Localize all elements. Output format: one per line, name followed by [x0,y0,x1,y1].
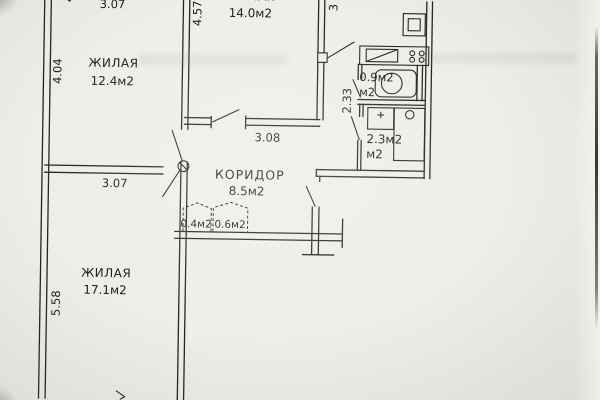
room1-name: ЖИЛАЯ [88,56,138,71]
sink-icon [366,49,398,62]
washbasin-icon [368,108,394,130]
paper-showthrough [138,54,288,65]
lower-cross-wall [303,207,335,255]
closet-1-area: 0.4м2 [180,218,211,230]
bath-area-unit: м2 [366,147,383,161]
wc-area-unit: м2 [359,85,375,99]
room3-area: 17.1м2 [83,283,127,298]
room1-area: 12.4м2 [90,74,134,89]
door-leaf-lower-room [306,186,316,207]
sanitary-bottom-wall [316,170,424,183]
dim-room1-height: 4.04 [50,58,64,84]
corner-shadow-bottom-left [0,378,24,400]
door-leaf-room3 [162,170,179,197]
door-leaf-room1 [172,130,183,162]
dim-room1-width: 3.07 [100,0,126,11]
dim-corridor-width: 3.08 [254,130,280,144]
wc-bath-divider-wall [358,100,425,106]
dim-room3-height: 5.58 [49,290,63,316]
vent-shaft-icon [403,14,425,36]
corridor-area: 8.5м2 [229,184,265,199]
outer-left-wall [38,0,51,398]
dim-room2-height: 4.57 [190,0,204,26]
floor-plan-photo: 3.07 4.04 ЖИЛАЯ 12.4м2 4.57 ЖИЛАЯ 14.0м2… [0,0,600,400]
dim-sanitary-height: 2.33 [340,88,354,114]
dimension-tick [65,0,71,1]
room2-right-wall [317,0,328,120]
wc-area: 0.9м2 [359,70,393,85]
room2-area: 14.0м2 [229,6,273,21]
door-leaf-kitchen [328,41,355,58]
closet-2-area: 0.6м2 [214,219,245,231]
bottom-arrow-mark [116,391,125,400]
bath-area: 2.3м2 [366,132,402,147]
room2-name: ЖИЛАЯ [226,0,276,4]
room-divider-wall [45,165,163,174]
corner-shadow-top-left [0,0,22,18]
paper-showthrough [418,53,578,63]
paper-edge-shadow [595,26,598,330]
door-leaf-room2 [212,109,239,122]
room2-bottom-wall [185,115,320,130]
dim-room3-width: 3.07 [102,176,128,190]
corridor-name: КОРИДОР [215,167,285,183]
room3-name: ЖИЛАЯ [81,266,131,281]
dim-right-top: 3 [326,4,340,12]
